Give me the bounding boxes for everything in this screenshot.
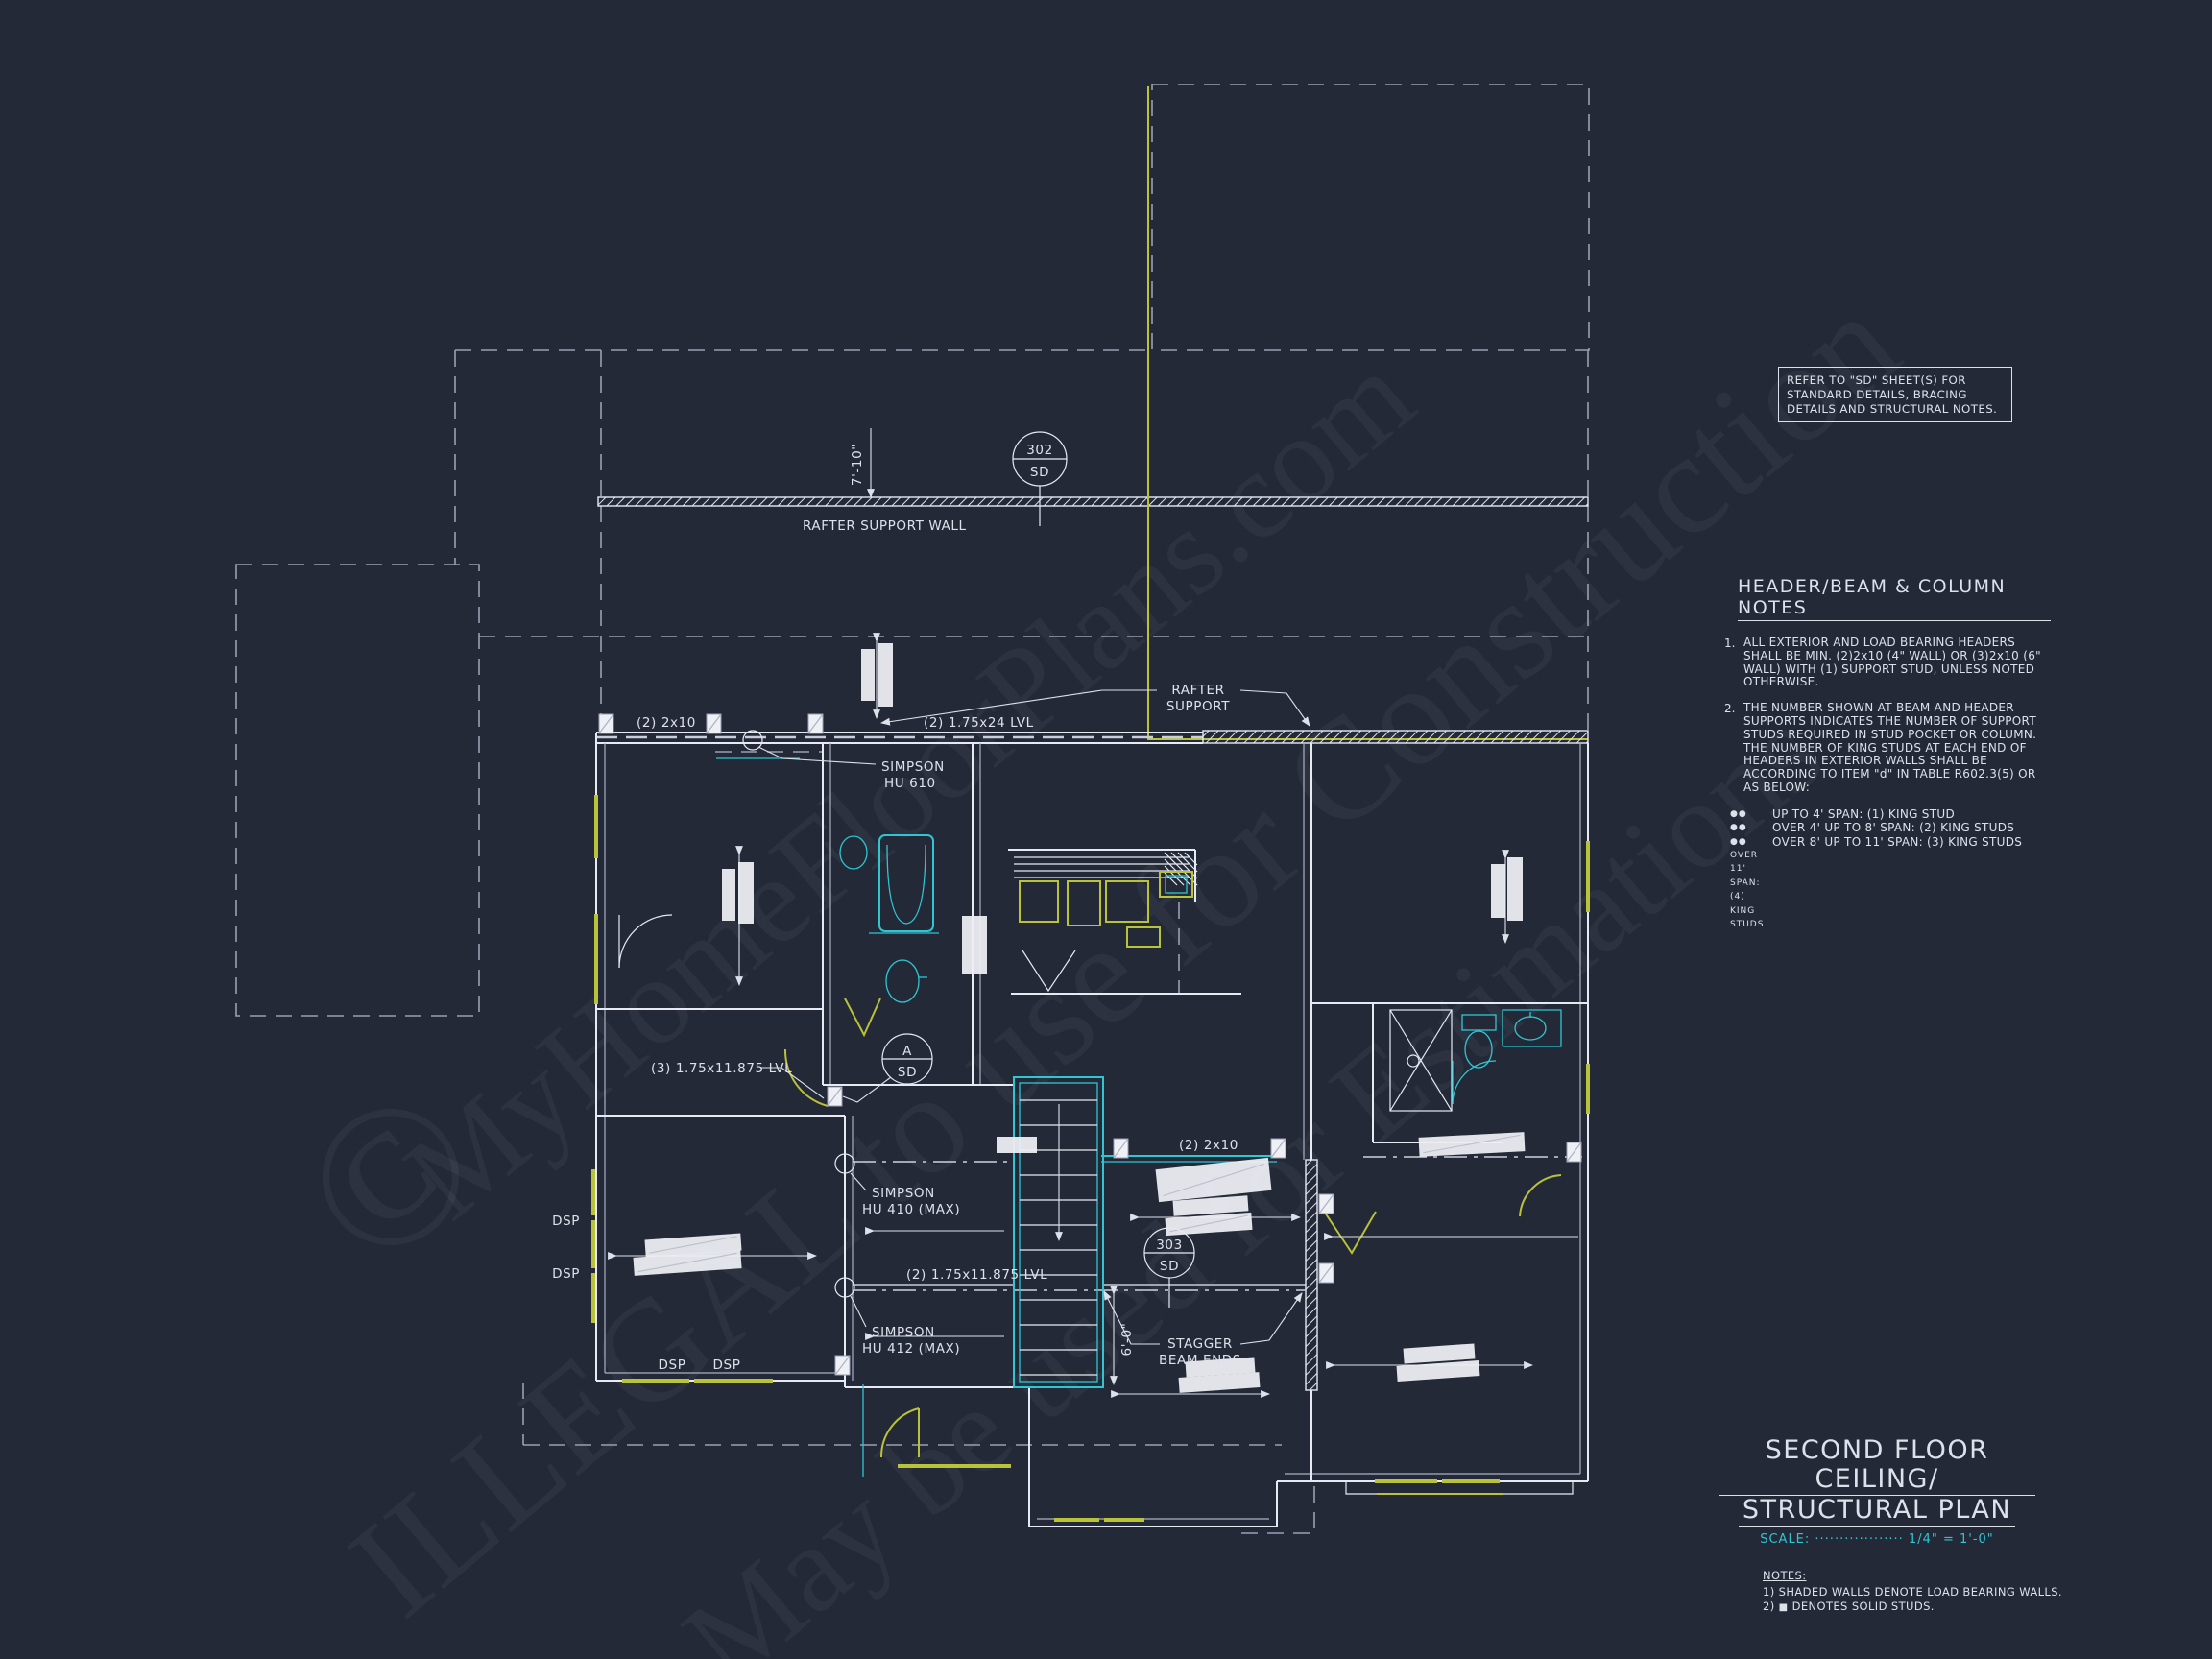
svg-text:SIMPSON: SIMPSON xyxy=(872,1186,935,1201)
bullet-icon: OVER 11' SPAN: (4) KING STUDS xyxy=(1724,849,1772,931)
solid-stud-square-icon: ■ xyxy=(1779,1602,1789,1613)
dsp-label: DSP xyxy=(659,1358,686,1373)
scale-note: SCALE: ·················· 1/4" = 1'-0" xyxy=(1719,1532,2035,1547)
svg-text:SD: SD xyxy=(898,1065,917,1080)
svg-text:SD: SD xyxy=(1160,1259,1179,1274)
sink xyxy=(886,960,919,1002)
stud-marker xyxy=(1567,1142,1581,1162)
general-note-2: 2) ■ DENOTES SOLID STUDS. xyxy=(1763,1599,2062,1615)
dsp-label: DSP xyxy=(713,1358,741,1373)
simpson-hu412-label: SIMPSON HU 412 (MAX) xyxy=(851,1296,960,1357)
sheet-title-line1: SECOND FLOOR CEILING/ xyxy=(1719,1436,2035,1496)
bullet-row: ●● UP TO 4' SPAN: (1) KING STUD xyxy=(1724,807,2051,821)
stud-marker xyxy=(1319,1194,1334,1214)
stud-marker xyxy=(599,714,613,733)
ref-note-line2: STANDARD DETAILS, BRACING xyxy=(1787,388,2011,402)
watermark-line2: ILLEGAL to use for Construction xyxy=(322,263,1928,1647)
dsp-label: DSP xyxy=(552,1266,580,1282)
dim-7-10: 7'-10" xyxy=(850,444,865,486)
bullet-row: OVER 11' SPAN: (4) KING STUDS xyxy=(1724,849,2051,931)
svg-text:(3) 1.75x11.875 LVL: (3) 1.75x11.875 LVL xyxy=(651,1061,792,1076)
stud-marker xyxy=(828,1087,842,1106)
svg-text:HU 410 (MAX): HU 410 (MAX) xyxy=(862,1202,960,1217)
rafter-support-wall-label: RAFTER SUPPORT WALL xyxy=(803,518,967,534)
ref-note-line3: DETAILS AND STRUCTURAL NOTES. xyxy=(1787,402,2011,417)
bullet-icon: ●● xyxy=(1724,821,1772,834)
header-beam-column-notes: HEADER/BEAM & COLUMN NOTES 1. ALL EXTERI… xyxy=(1724,576,2051,931)
reference-note-box: REFER TO "SD" SHEET(S) FOR STANDARD DETA… xyxy=(1778,367,2012,422)
stud-marker xyxy=(707,714,721,733)
svg-text:SD: SD xyxy=(1030,465,1049,480)
stud-marker xyxy=(1271,1139,1286,1158)
general-notes: NOTES: 1) SHADED WALLS DENOTE LOAD BEARI… xyxy=(1763,1569,2062,1615)
bullet-row: ●● OVER 4' UP TO 8' SPAN: (2) KING STUDS xyxy=(1724,821,2051,834)
svg-text:6'-0": 6'-0" xyxy=(1119,1323,1135,1357)
svg-text:SIMPSON: SIMPSON xyxy=(872,1325,935,1340)
bullet-icon: ●● xyxy=(1724,807,1772,821)
label-2x10-top: (2) 2x10 xyxy=(637,715,696,731)
label-2x10-mid: (2) 2x10 xyxy=(1179,1138,1238,1153)
door-swing xyxy=(785,1049,828,1106)
svg-text:STAGGER: STAGGER xyxy=(1167,1336,1233,1352)
svg-text:A: A xyxy=(902,1044,912,1059)
svg-text:HU 412 (MAX): HU 412 (MAX) xyxy=(862,1341,960,1357)
rafter-support-wall: RAFTER SUPPORT WALL 7'-10" 302 SD xyxy=(598,428,1588,534)
blueprint-sheet: © MyHomeFloorPlans.com ILLEGAL to use fo… xyxy=(0,0,2212,1659)
bullet-row: ●● OVER 8' UP TO 11' SPAN: (3) KING STUD… xyxy=(1724,835,2051,849)
note-item-2: 2. THE NUMBER SHOWN AT BEAM AND HEADER S… xyxy=(1724,702,2051,795)
ref-note-line1: REFER TO "SD" SHEET(S) FOR xyxy=(1787,373,2011,388)
svg-text:SIMPSON: SIMPSON xyxy=(881,759,945,775)
svg-text:RAFTER: RAFTER xyxy=(1171,683,1224,698)
svg-text:303: 303 xyxy=(1156,1238,1183,1253)
door-swing xyxy=(1520,1175,1561,1216)
title-block: SECOND FLOOR CEILING/ STRUCTURAL PLAN SC… xyxy=(1719,1436,2035,1547)
svg-text:SUPPORT: SUPPORT xyxy=(1166,699,1230,714)
general-note-1: 1) SHADED WALLS DENOTE LOAD BEARING WALL… xyxy=(1763,1585,2062,1599)
notes-title: HEADER/BEAM & COLUMN NOTES xyxy=(1738,576,2051,621)
label-lvl-11875-2: (2) 1.75x11.875 LVL xyxy=(906,1267,1047,1283)
dsp-label: DSP xyxy=(552,1214,580,1229)
stud-marker xyxy=(1114,1139,1128,1158)
svg-text:302: 302 xyxy=(1026,443,1053,458)
stud-marker xyxy=(1319,1263,1334,1283)
king-stud-bullets: ●● UP TO 4' SPAN: (1) KING STUD ●● OVER … xyxy=(1724,807,2051,932)
stud-marker xyxy=(808,714,823,733)
label-lvl24: (2) 1.75x24 LVL xyxy=(924,715,1034,731)
sheet-title-line2: STRUCTURAL PLAN xyxy=(1739,1496,2015,1527)
svg-text:HU 610: HU 610 xyxy=(884,776,936,791)
callout-302-sd: 302 SD xyxy=(1013,432,1067,526)
note-item-1: 1. ALL EXTERIOR AND LOAD BEARING HEADERS… xyxy=(1724,637,2051,689)
lvl-11875-3-label: (3) 1.75x11.875 LVL xyxy=(651,1061,824,1098)
watermark: © MyHomeFloorPlans.com ILLEGAL to use fo… xyxy=(259,263,1927,1659)
general-notes-title: NOTES: xyxy=(1763,1569,1807,1583)
stud-marker xyxy=(835,1356,850,1375)
bullet-icon: ●● xyxy=(1724,835,1772,849)
door-swing xyxy=(845,998,880,1035)
svg-text:BEAM ENDS: BEAM ENDS xyxy=(1159,1353,1241,1368)
